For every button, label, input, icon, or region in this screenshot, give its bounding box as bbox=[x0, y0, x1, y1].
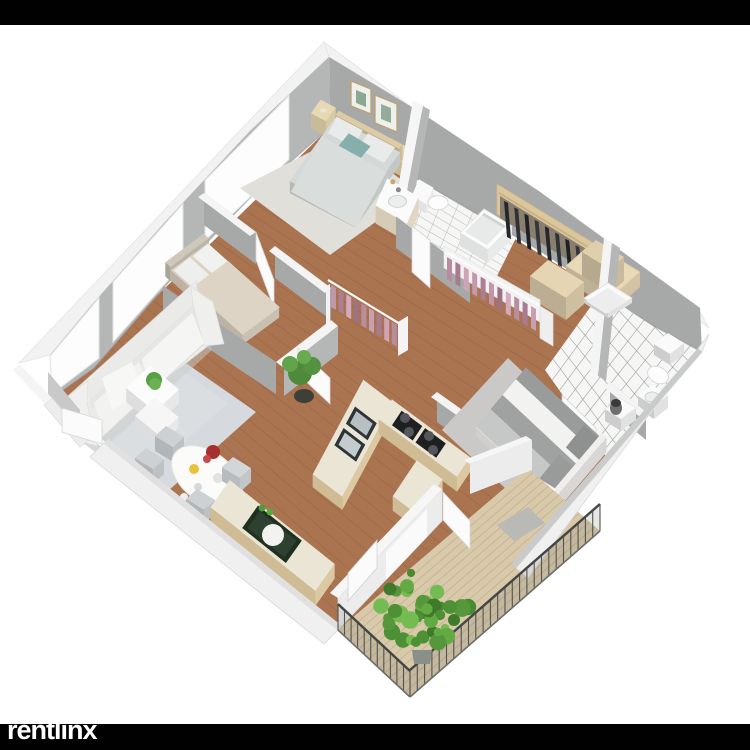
svg-text:rentlinx: rentlinx bbox=[7, 715, 98, 745]
